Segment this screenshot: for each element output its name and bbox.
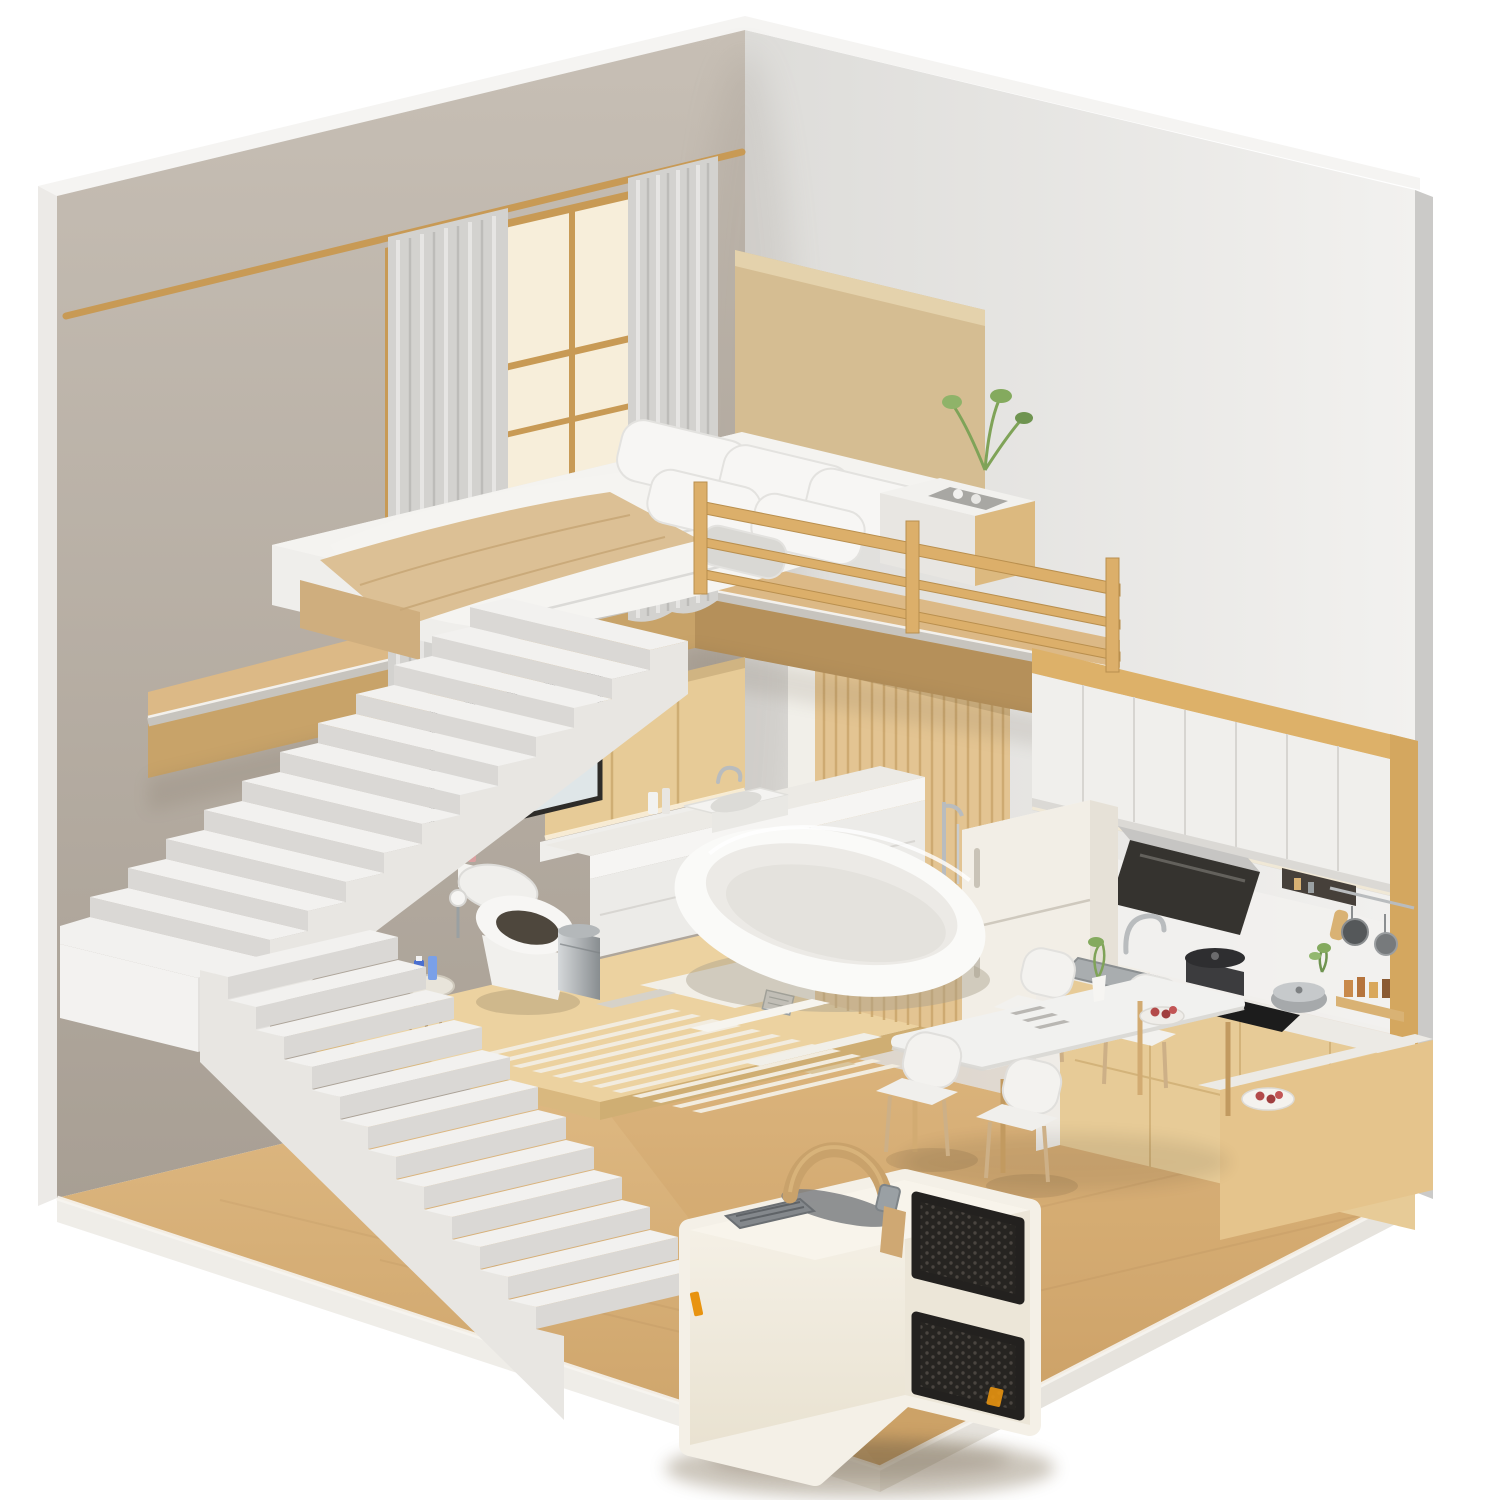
railing-post-left: [694, 482, 707, 594]
fruit-bowl: [1140, 1006, 1184, 1025]
hanging-pan: [1342, 919, 1368, 945]
left-wall-side-edge: [38, 186, 57, 1206]
railing-post-mid: [906, 521, 919, 633]
serving-plate: [1242, 1088, 1294, 1110]
fridge-handle-top: [974, 848, 980, 888]
cooking-pot-steel: [1271, 982, 1327, 1013]
trash-can: [558, 924, 600, 1000]
render-canvas: [0, 0, 1493, 1500]
cleaning-bottle-light: [428, 956, 437, 980]
cabinet-side-panel: [1390, 734, 1418, 1046]
handle-strap-tail: [880, 1206, 906, 1258]
isometric-loft-render: [0, 0, 1493, 1500]
railing-post-right: [1106, 558, 1119, 672]
hanging-pan-small: [1375, 933, 1397, 955]
